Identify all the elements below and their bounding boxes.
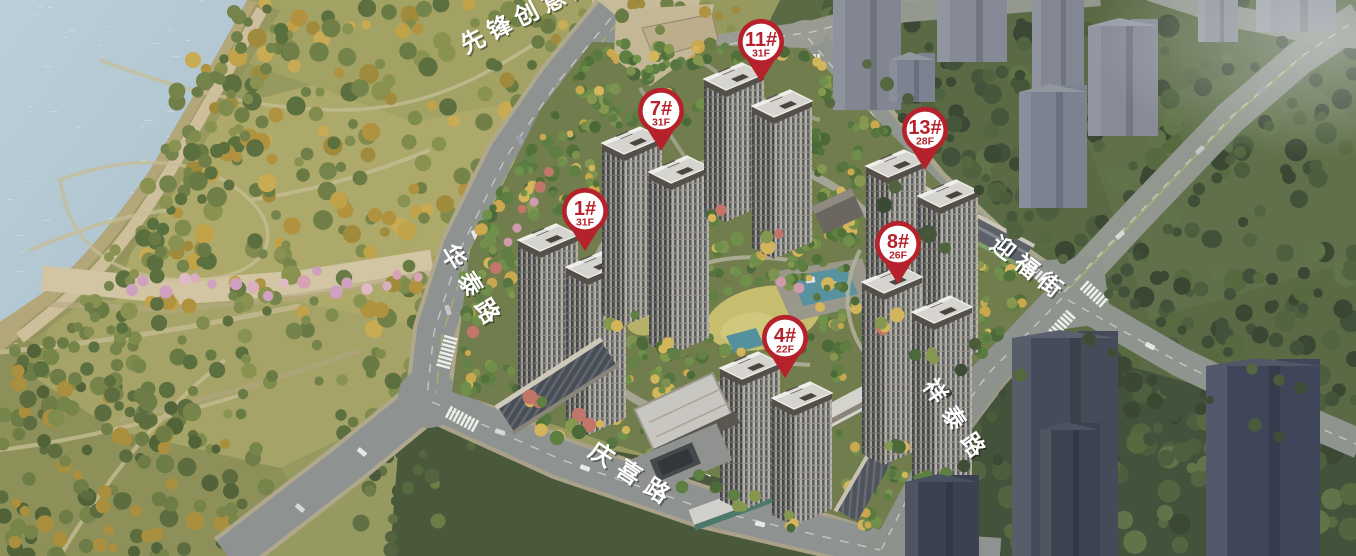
svg-text:26F: 26F xyxy=(889,250,908,262)
svg-text:31F: 31F xyxy=(652,117,671,129)
svg-text:31F: 31F xyxy=(752,48,771,60)
svg-text:28F: 28F xyxy=(916,136,935,148)
svg-text:22F: 22F xyxy=(776,344,795,356)
svg-text:31F: 31F xyxy=(576,217,595,229)
